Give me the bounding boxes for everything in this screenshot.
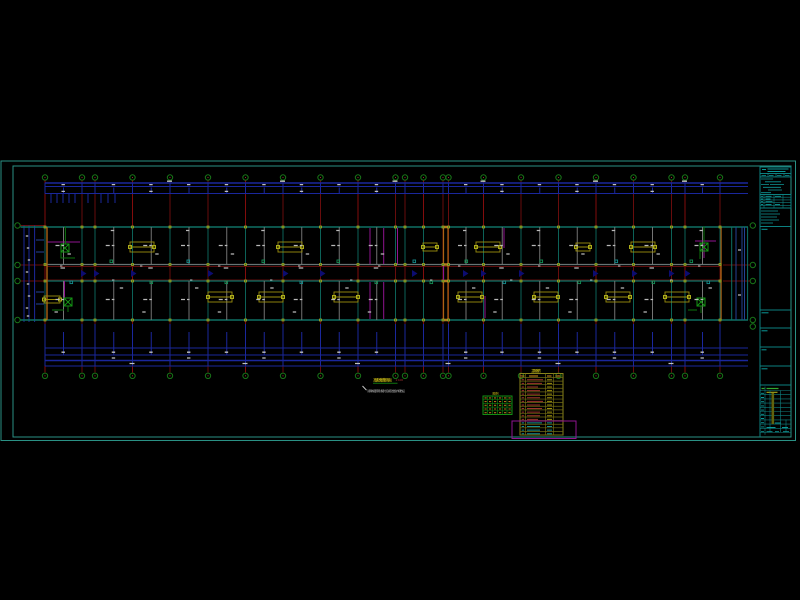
svg-text:说明:本图照明线路均沿墙及楼板内暗敷设: 说明:本图照明线路均沿墙及楼板内暗敷设 [367, 388, 405, 393]
svg-text:图例: 图例 [493, 391, 499, 396]
svg-text:某某宿舍楼电照平面: 某某宿舍楼电照平面 [373, 377, 392, 383]
svg-text:主要设备表: 主要设备表 [531, 368, 542, 373]
svg-text:1:100: 1:100 [396, 378, 404, 382]
